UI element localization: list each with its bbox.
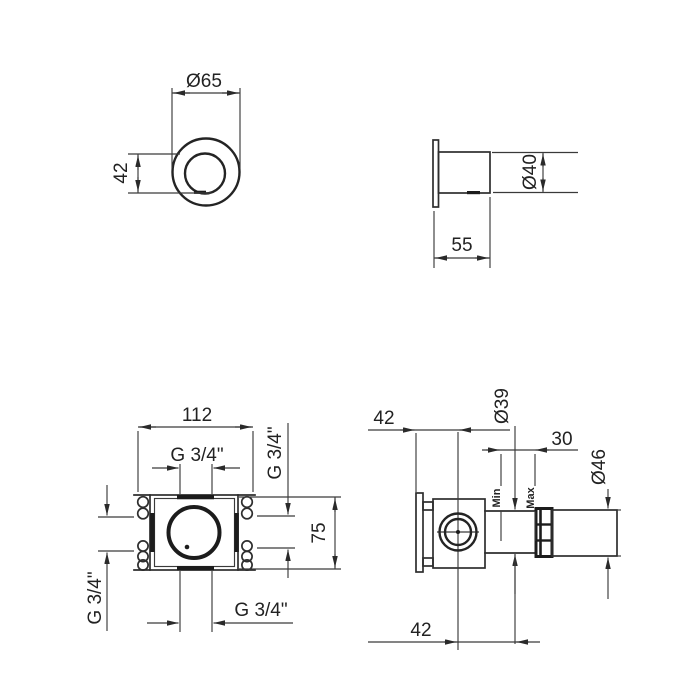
label-max: Max (525, 486, 537, 508)
dim-center-to-wall: 42 (368, 620, 540, 642)
coil-top-left (138, 497, 149, 519)
cartridge-dot (185, 545, 190, 550)
coil-top-left-line (138, 508, 149, 519)
max-wall-indicator: Max (525, 454, 537, 541)
min-wall-indicator: Min (491, 454, 503, 541)
knurled-nut-line (536, 509, 552, 557)
dim-label-75: 75 (309, 522, 330, 543)
handle-body (439, 152, 491, 193)
dim-label-o40: Ø40 (520, 154, 541, 190)
handle-front-view: Ø65 42 (111, 71, 240, 206)
dim-label-o46: Ø46 (589, 449, 610, 485)
coil-top-right (242, 497, 253, 519)
dim-label-42-handle: 42 (111, 162, 132, 183)
dim-handle-depth: 55 (434, 197, 490, 268)
dim-adjust-range: 30 (482, 429, 578, 450)
coil-top-right-line (242, 497, 253, 508)
valve-center-dot (456, 530, 460, 534)
technical-drawing: Ø65 42 Ø40 55 (0, 0, 700, 700)
dim-label-30: 30 (551, 429, 572, 450)
dim-handle-height: 42 (111, 154, 211, 193)
dim-thread-left: G 3/4" (85, 485, 134, 631)
dim-label-o65: Ø65 (186, 71, 222, 92)
body-side-view: 42 Ø39 30 Min Max Ø46 (368, 388, 621, 650)
body-front-view: 112 G 3/4" 75 G 3/4" (85, 405, 341, 632)
dim-sleeve-diameter: Ø39 (492, 388, 515, 644)
dim-box-height: 75 (239, 497, 341, 569)
handle-outer-circle (173, 139, 240, 206)
handle-side-view: Ø40 55 (433, 140, 578, 268)
dim-trim-diameter: Ø46 (589, 449, 610, 599)
dim-label-o39: Ø39 (492, 388, 513, 424)
knurled-nut (536, 509, 552, 557)
dim-label-g34-left: G 3/4" (85, 571, 106, 624)
dim-label-42-bottom: 42 (410, 620, 431, 641)
coil-top-right-line (242, 508, 253, 519)
coil-bottom-right (242, 541, 252, 570)
trim-handle (552, 510, 617, 556)
dim-label-g34-bottom: G 3/4" (234, 600, 287, 621)
dim-label-42-top: 42 (373, 408, 394, 429)
dim-handle-side-diameter: Ø40 (492, 153, 578, 193)
coil-bottom-left (138, 541, 148, 570)
coil-bottom-left-line (138, 541, 148, 551)
coil-top-left-line (138, 497, 149, 508)
cartridge-circle (169, 507, 220, 558)
handle-inner-circle (185, 154, 225, 194)
dim-thread-bottom: G 3/4" (147, 571, 293, 632)
dim-label-55: 55 (451, 235, 472, 256)
dim-label-g34-right: G 3/4" (265, 426, 286, 479)
mount-tab-bottom (423, 558, 433, 566)
dim-thread-right: G 3/4" (257, 423, 295, 578)
coil-bottom-right-line (242, 541, 252, 551)
mount-tab-top (423, 502, 433, 510)
wall-plate-side (416, 493, 423, 572)
dim-thread-top: G 3/4" (152, 445, 240, 494)
label-min: Min (491, 488, 503, 507)
dim-label-g34-top: G 3/4" (170, 445, 223, 466)
dim-label-112: 112 (182, 405, 212, 426)
technical-drawing-page: Ø65 42 Ø40 55 (0, 0, 700, 700)
